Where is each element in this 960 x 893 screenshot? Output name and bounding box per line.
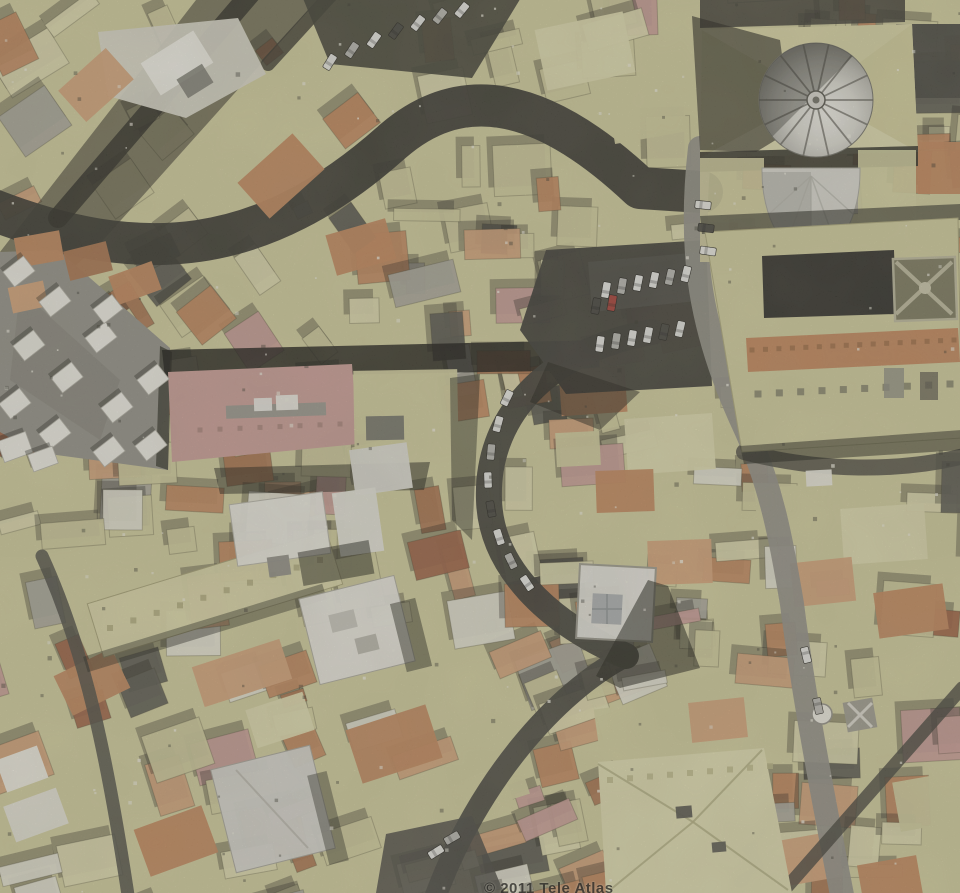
aerial-imagery	[0, 0, 960, 893]
satellite-map-canvas[interactable]: © 2011 Tele Atlas	[0, 0, 960, 893]
copyright-watermark: © 2011 Tele Atlas	[484, 881, 614, 893]
grain-light-overlay	[0, 0, 960, 893]
